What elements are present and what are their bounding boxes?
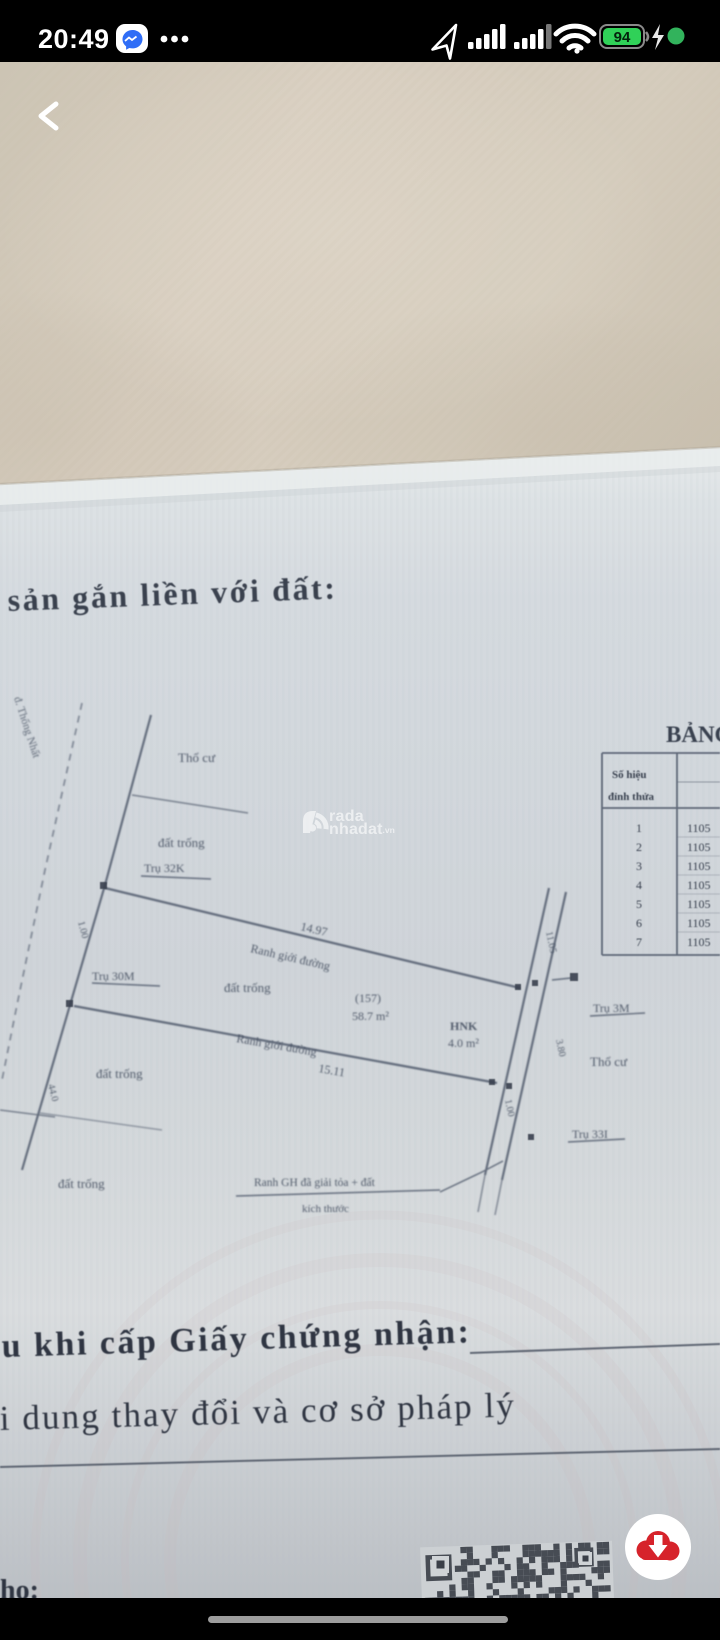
svg-text:1105: 1105: [687, 897, 711, 911]
svg-text:7: 7: [636, 935, 642, 949]
svg-text:Trụ 3M: Trụ 3M: [593, 1001, 630, 1015]
svg-text:1105: 1105: [687, 916, 711, 930]
svg-text:Trụ 32K: Trụ 32K: [144, 861, 185, 875]
svg-text:đất trống: đất trống: [158, 835, 205, 850]
svg-text:đỉnh thửa: đỉnh thửa: [608, 791, 655, 803]
svg-text:nhadat: nhadat: [329, 821, 383, 838]
svg-text:2: 2: [636, 840, 642, 854]
svg-text:HNK: HNK: [450, 1019, 478, 1033]
svg-text:1: 1: [636, 821, 642, 835]
svg-text:6: 6: [636, 916, 642, 930]
svg-text:Trụ 30M: Trụ 30M: [92, 969, 135, 983]
svg-text:5: 5: [636, 897, 642, 911]
svg-text:3: 3: [636, 859, 642, 873]
svg-text:1105: 1105: [687, 840, 711, 854]
svg-text:1105: 1105: [687, 935, 711, 949]
svg-text:.vn: .vn: [383, 825, 395, 835]
svg-text:đất trống: đất trống: [224, 980, 271, 995]
svg-text:BẢNG: BẢNG: [666, 722, 720, 747]
svg-text:Thổ cư: Thổ cư: [590, 1054, 628, 1069]
svg-text:Số hiệu: Số hiệu: [612, 769, 647, 781]
svg-text:4: 4: [636, 878, 642, 892]
svg-text:ho:: ho:: [0, 1575, 39, 1598]
svg-text:Ranh GH đã giải tỏa + đất: Ranh GH đã giải tỏa + đất: [254, 1176, 376, 1189]
svg-text:Thổ cư: Thổ cư: [178, 750, 216, 765]
svg-text:đất trống: đất trống: [58, 1176, 105, 1191]
svg-text:1105: 1105: [687, 878, 711, 892]
svg-text:1105: 1105: [687, 859, 711, 873]
svg-text:58.7 m²: 58.7 m²: [352, 1009, 389, 1023]
svg-text:94: 94: [614, 29, 631, 46]
svg-text:4.0 m²: 4.0 m²: [448, 1036, 479, 1050]
svg-text:1105: 1105: [687, 821, 711, 835]
svg-text:đất trống: đất trống: [96, 1066, 143, 1081]
svg-text:Trụ 33I: Trụ 33I: [572, 1127, 608, 1141]
svg-text:(157): (157): [355, 991, 381, 1005]
svg-text:kích thước: kích thước: [302, 1203, 349, 1215]
